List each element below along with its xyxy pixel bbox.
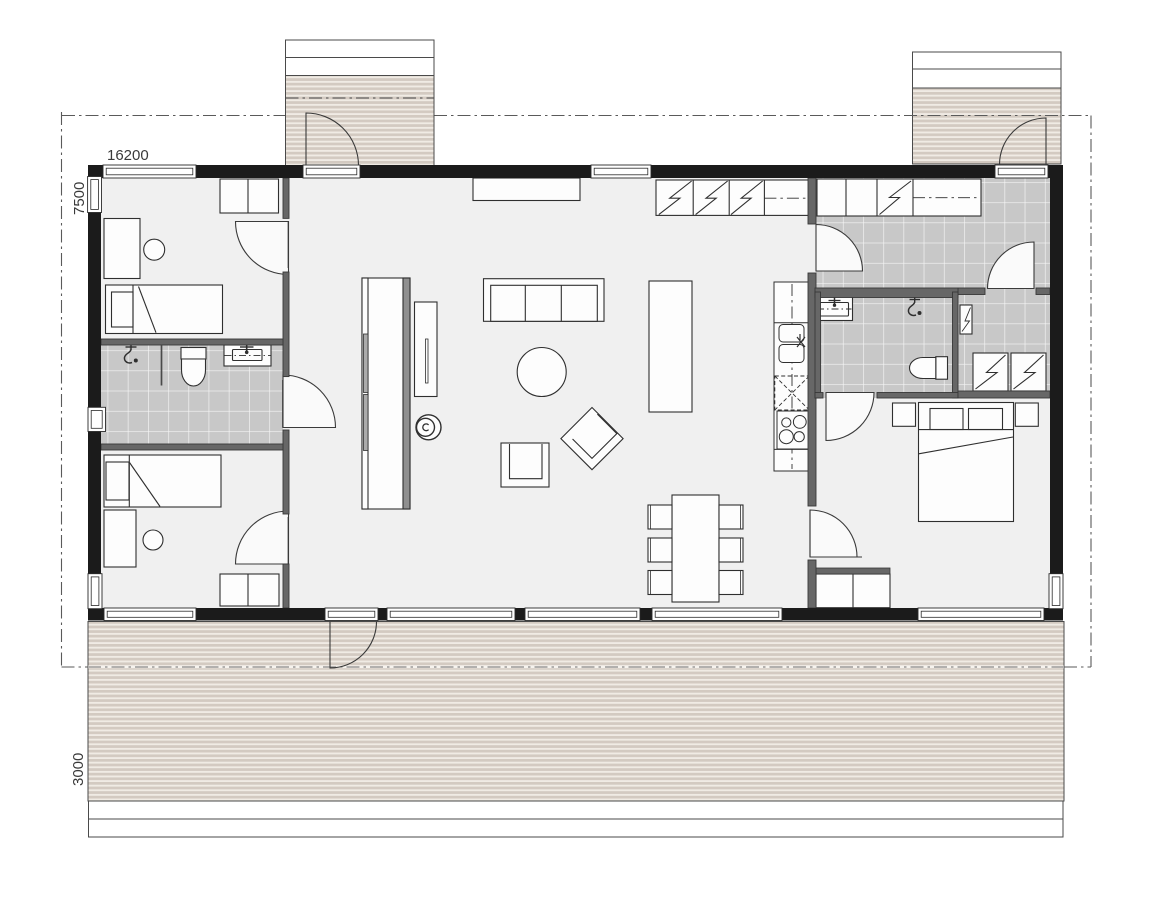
svg-text:16200: 16200 <box>107 147 149 164</box>
svg-text:7500: 7500 <box>71 182 88 215</box>
svg-text:3000: 3000 <box>70 753 87 786</box>
